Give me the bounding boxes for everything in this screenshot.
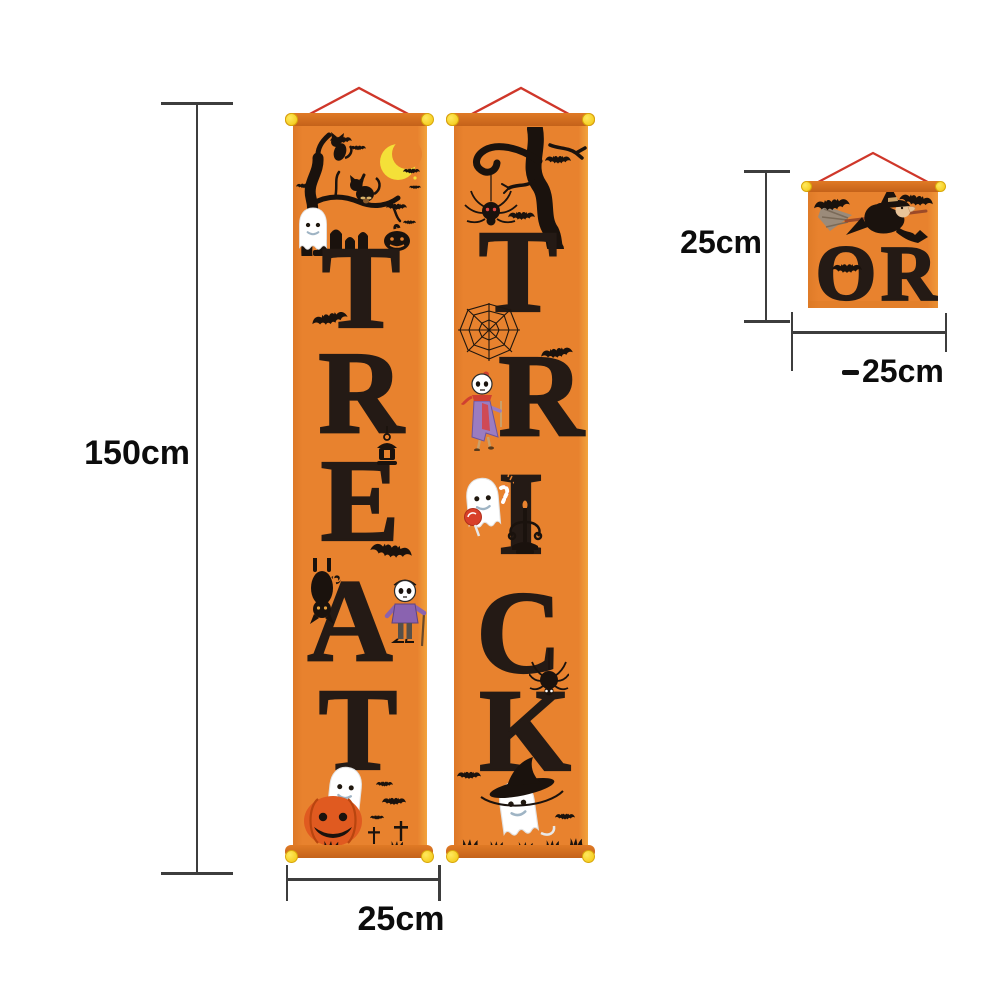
pin-icon [446, 113, 459, 126]
or-banner: O R [808, 191, 938, 308]
skeleton-witch-icon [458, 371, 506, 451]
banner-rod-top [446, 113, 595, 126]
banner-rod-top [285, 113, 433, 126]
trick-banner: T R I C K [454, 119, 588, 851]
dim-tick-right [945, 313, 948, 352]
lollipop-icon [465, 509, 482, 537]
dim-line-horizontal [792, 331, 947, 334]
bat-icon [541, 347, 573, 362]
banner-letter: R [881, 235, 937, 308]
bat-icon [370, 543, 412, 563]
pin-icon [801, 181, 812, 192]
black-cat-icon [331, 132, 351, 162]
spider-icon [529, 648, 569, 702]
bat-icon [832, 263, 862, 277]
ghost-on-pumpkin-icon [296, 763, 427, 851]
pin-icon [421, 113, 434, 126]
dim-line-vertical [196, 104, 199, 875]
dim-line-vertical [765, 171, 768, 321]
pin-icon [421, 850, 434, 863]
banner-rod-bottom [446, 845, 595, 858]
spider-web-icon [458, 303, 520, 361]
dim-tick-left [791, 312, 794, 371]
small-height-dimension-label: 25cm [660, 226, 762, 260]
banner-hem [808, 301, 938, 308]
dim-cap-top [744, 170, 790, 173]
pumpkin-icon [304, 796, 362, 846]
bat-icon [814, 198, 850, 215]
pin-icon [285, 113, 298, 126]
witch-hat-ghost-icon [455, 753, 588, 851]
dim-cap-bottom [744, 320, 790, 323]
hanging-cat-icon [303, 558, 343, 628]
bat-icon [312, 312, 348, 329]
skeleton-kid-icon [383, 576, 427, 660]
bat-icon [899, 194, 933, 210]
dim-cap-bottom [161, 872, 233, 875]
dash-mark [842, 370, 859, 375]
candy-cane-icon [501, 473, 514, 502]
treat-banner: T R E A T [293, 119, 427, 851]
dim-tick-right [438, 865, 441, 901]
product-size-diagram: 150cm [0, 0, 1000, 1000]
pin-icon [582, 850, 595, 863]
pin-icon [935, 181, 946, 192]
hanging-lantern-icon [372, 426, 402, 468]
height-dimension-label: 150cm [58, 436, 190, 472]
small-width-dimension-label: 25cm [862, 355, 954, 389]
pin-icon [582, 113, 595, 126]
dim-tick-left [286, 865, 289, 901]
dim-line-horizontal [287, 878, 440, 881]
banner-rod-bottom [285, 845, 433, 858]
banner-rod-top [802, 181, 944, 192]
candelabra-icon [502, 500, 548, 556]
width-dimension-label: 25cm [341, 902, 461, 938]
crescent-moon-icon [380, 139, 422, 180]
pin-icon [285, 850, 298, 863]
pin-icon [446, 850, 459, 863]
